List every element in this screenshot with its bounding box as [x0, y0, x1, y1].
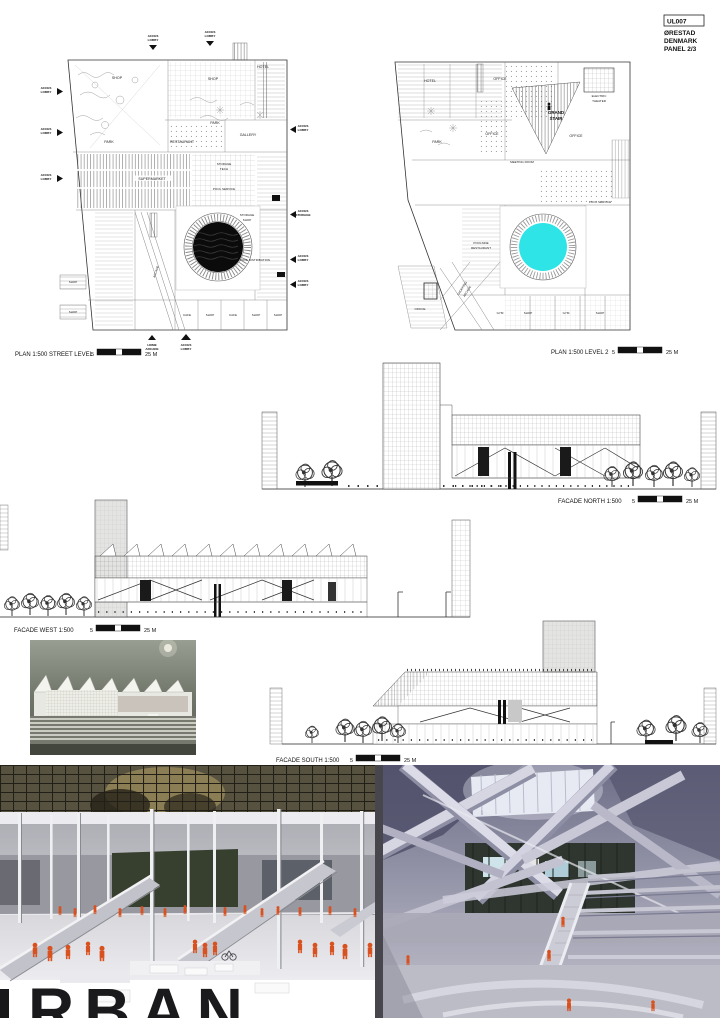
plan-label: SHOP	[69, 280, 78, 284]
plan-level-2: HOTEL OFFICE ELECTRIC THEATER PARK OFFIC…	[395, 62, 630, 330]
plan-label: THEATER	[592, 99, 607, 103]
plan-label: OFFICE	[485, 132, 499, 136]
access-label: LOBBY	[298, 258, 310, 262]
plan-label: SHOP	[252, 313, 261, 317]
plan-label: ELECTRIC	[592, 94, 608, 98]
plan-label: HOTEL	[424, 79, 436, 83]
plan-label: SHOP	[274, 313, 283, 317]
access-label: LOBBY	[181, 347, 193, 351]
panel-number: PANEL 2/3	[664, 46, 697, 53]
arrow-left-icon	[290, 281, 296, 288]
arrow-up-icon	[148, 335, 156, 340]
access-label: ARCADE	[145, 347, 158, 351]
scale-near: 5	[350, 758, 353, 764]
plan2-title: PLAN 1:500 LEVEL 2	[551, 350, 609, 356]
plan-label: OFFICE	[415, 307, 426, 311]
plan1-title: PLAN 1:500 STREET LEVEL	[15, 352, 94, 358]
arrow-right-icon	[57, 175, 63, 182]
street-lamps	[398, 592, 451, 617]
arrow-right-icon	[57, 129, 63, 136]
bus-shelter	[296, 481, 338, 486]
plan-label: MEETING ROOM	[510, 160, 534, 164]
panel-title-block: UL007 ØRESTAD DENMARK PANEL 2/3	[664, 15, 704, 53]
plan-label: SHOP	[208, 77, 219, 81]
scale-far: 25 M	[144, 628, 157, 634]
plan-label: POOL DISTRIBUTION	[240, 258, 270, 262]
scale-far: 25 M	[404, 758, 417, 764]
presentation-panel: UL007 ØRESTAD DENMARK PANEL 2/3 SHOP S	[0, 0, 720, 1018]
arrow-left-icon	[290, 256, 296, 263]
plan-label: STORAGE	[240, 213, 255, 217]
access-label: LOBBY	[41, 131, 53, 135]
plan-label: SHOP	[112, 76, 123, 80]
facade-south-title: FACADE SOUTH 1:500	[276, 758, 340, 764]
plan-label: SUPERMARKET	[138, 177, 166, 181]
scale-far: 25 M	[145, 352, 158, 358]
plan-label: GRAND	[548, 110, 564, 115]
plan-label: POOLSIDE	[473, 241, 488, 245]
plan-label: ARCADE	[152, 265, 160, 278]
pool-circle-level2	[519, 223, 567, 271]
street-lamp	[611, 722, 615, 744]
arrow-up-icon	[181, 334, 191, 340]
arrow-left-icon	[290, 126, 296, 133]
panel-city: ØRESTAD	[664, 30, 696, 37]
facade-south: FACADE SOUTH 1:500 5 25 M	[270, 621, 716, 764]
plan-label: STORAGE	[217, 162, 232, 166]
access-label: LOBBY	[148, 38, 160, 42]
plan-label: GYM	[563, 311, 570, 315]
louver-band	[30, 716, 196, 744]
plan-label: OFFICE	[569, 134, 583, 138]
facade-north-title: FACADE NORTH 1:500	[558, 499, 622, 505]
access-label: LOBBY	[205, 34, 217, 38]
plan-label: SHOP	[243, 218, 252, 222]
plan-label: SHOP	[206, 313, 215, 317]
model-photo-exterior	[30, 640, 196, 755]
access-label: LOBBY	[298, 283, 310, 287]
plan-label: RESTAURANT	[170, 140, 195, 144]
model-photo-interior-right	[383, 765, 720, 1018]
plan-label: PARK	[104, 140, 114, 144]
scale-near: 5	[612, 350, 615, 356]
plan-label: CAFE	[183, 313, 191, 317]
plan-label: STAIR	[550, 116, 564, 121]
sawtooth-roof	[100, 544, 356, 556]
facade-west: FACADE WEST 1:500 5 25 M	[0, 500, 470, 634]
plan-label: CAFE	[229, 313, 237, 317]
access-label: LOBBY	[298, 128, 310, 132]
bus-shelter	[645, 740, 673, 744]
arrow-right-icon	[57, 88, 63, 95]
plan-label: RESTAURANT	[471, 246, 491, 250]
plan-label: PARK	[432, 140, 442, 144]
access-label: STORAGE	[295, 213, 310, 217]
person-icon	[548, 103, 551, 110]
plan1-title-row: PLAN 1:500 STREET LEVEL 5 25 M	[15, 349, 158, 358]
plan-label: SHOP	[69, 310, 78, 314]
arrow-down-icon	[149, 45, 157, 50]
arrow-down-icon	[206, 41, 214, 46]
scale-near: 5	[632, 499, 635, 505]
plan-label: HOTEL	[257, 65, 269, 69]
scale-near: 5	[90, 628, 93, 634]
plan-label: GYM	[497, 311, 504, 315]
scale-near: 5	[91, 352, 94, 358]
plan-label: TECH	[220, 167, 228, 171]
arrow-left-icon	[290, 211, 296, 218]
facade-west-title: FACADE WEST 1:500	[14, 628, 74, 634]
scale-far: 25 M	[666, 350, 679, 356]
plan-label: SHOP	[524, 311, 533, 315]
plan-label: OFFICE	[493, 77, 507, 81]
plan-label: POOL SERVICE	[589, 200, 611, 204]
plan-label: PARK	[210, 121, 220, 125]
model-photo-interior-left: RBAN	[0, 765, 383, 1018]
access-label: LOBBY	[41, 90, 53, 94]
plan-label: POOL SERVICE	[213, 187, 235, 191]
panel-code: UL007	[667, 19, 687, 26]
facade-north: FACADE NORTH 1:500 5 25 M	[262, 363, 716, 505]
panel-country: DENMARK	[664, 38, 698, 45]
plan-label: GALLERY	[240, 133, 257, 137]
lamp-glow	[164, 644, 172, 652]
plan2-title-row: PLAN 1:500 LEVEL 2 5 25 M	[551, 347, 679, 356]
model-sign-text: RBAN	[28, 975, 253, 1018]
access-label: LOBBY	[41, 177, 53, 181]
plan-label: SHOP	[596, 311, 605, 315]
scale-far: 25 M	[686, 499, 699, 505]
plan-street-level: SHOP SHOP HOTEL PARK RESTAURANT PARK GAL…	[41, 30, 311, 351]
